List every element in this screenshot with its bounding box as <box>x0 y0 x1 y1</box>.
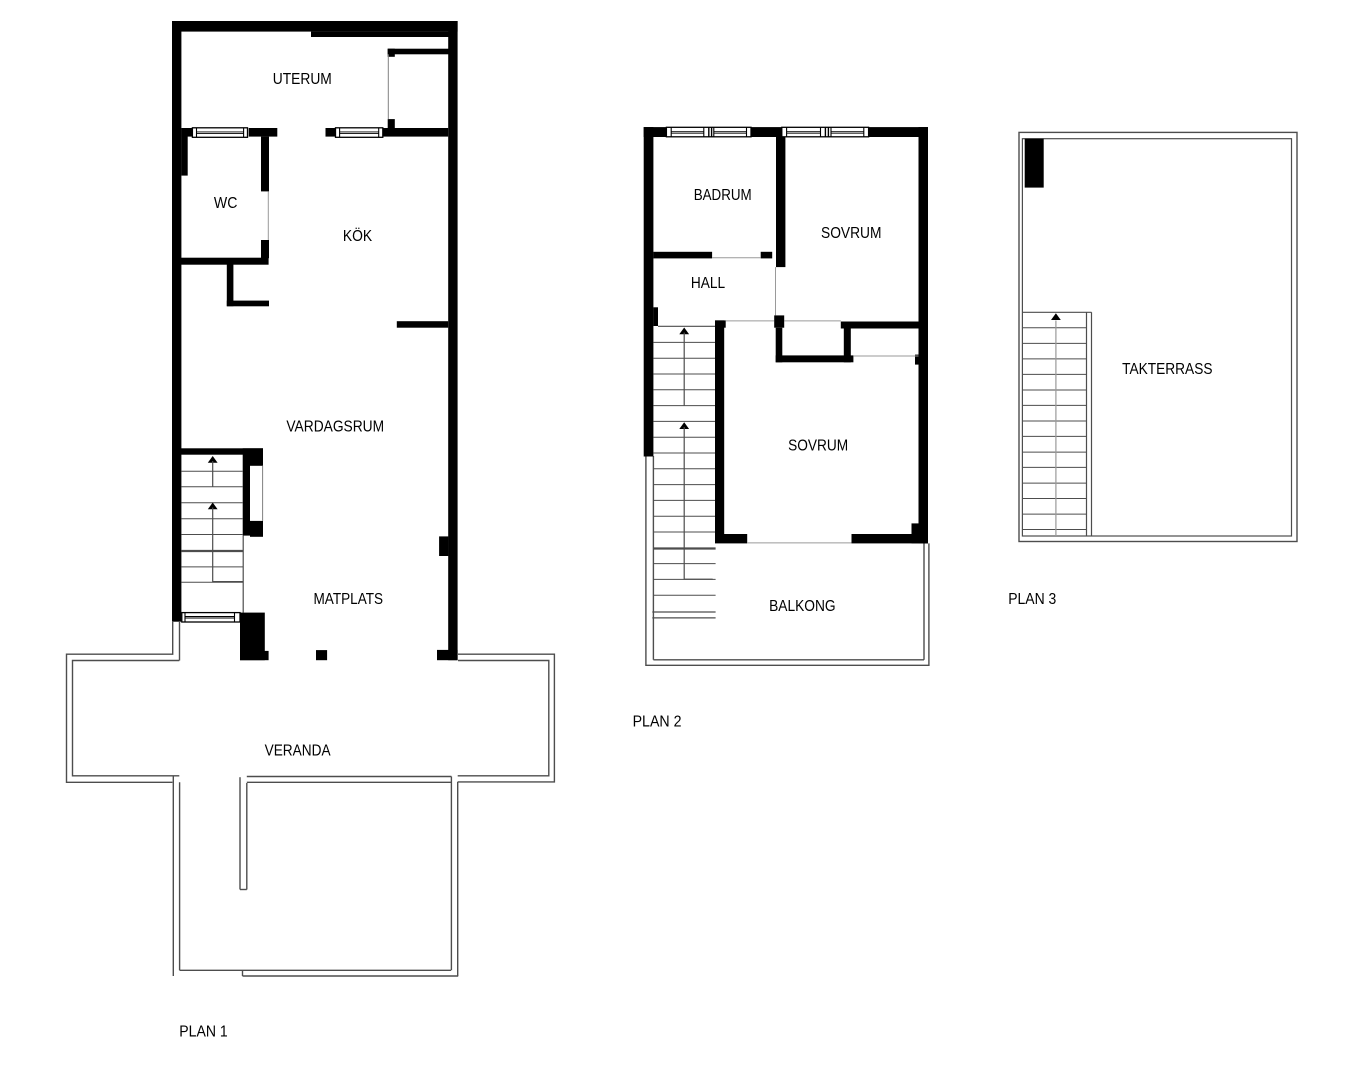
svg-text:SOVRUM: SOVRUM <box>788 438 848 455</box>
svg-text:WC: WC <box>214 195 238 212</box>
svg-text:VARDAGSRUM: VARDAGSRUM <box>286 419 384 436</box>
svg-text:MATPLATS: MATPLATS <box>314 591 384 608</box>
svg-text:HALL: HALL <box>691 275 725 292</box>
svg-text:VERANDA: VERANDA <box>265 743 331 760</box>
svg-text:BADRUM: BADRUM <box>694 187 752 204</box>
svg-text:TAKTERRASS: TAKTERRASS <box>1122 361 1212 378</box>
svg-text:BALKONG: BALKONG <box>769 598 836 615</box>
svg-text:UTERUM: UTERUM <box>273 71 332 88</box>
svg-text:KÖK: KÖK <box>343 227 373 245</box>
svg-text:SOVRUM: SOVRUM <box>821 225 882 242</box>
svg-text:PLAN 3: PLAN 3 <box>1008 591 1056 608</box>
svg-text:PLAN 2: PLAN 2 <box>633 714 682 731</box>
svg-text:PLAN 1: PLAN 1 <box>179 1023 227 1040</box>
